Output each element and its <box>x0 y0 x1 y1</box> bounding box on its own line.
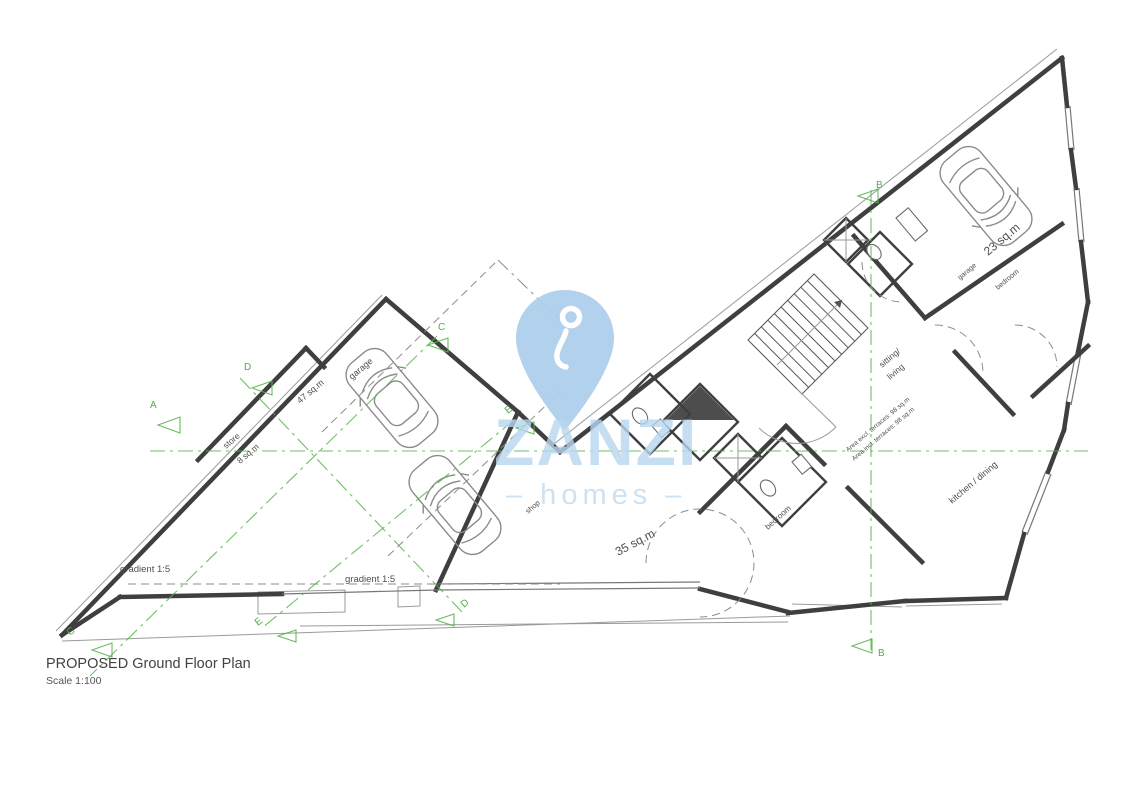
room-label-bedroom-right: bedroom <box>995 268 1021 291</box>
room-area-shop: 35 sq.m <box>613 526 657 558</box>
pavement <box>258 586 1002 614</box>
section-marker-e-bottom: E <box>253 615 265 628</box>
car-icon <box>929 136 1043 255</box>
watermark-tagline: – homes – <box>506 479 686 511</box>
section-marker-c-top: C <box>438 322 445 333</box>
plan-scale: Scale 1:100 <box>46 675 102 687</box>
annotation-gradient-mid: gradient 1:5 <box>345 574 395 585</box>
interior-walls <box>198 224 1088 562</box>
floor-plan-page: A B B C C D D E E store 8 sq.m garage 47… <box>0 0 1131 800</box>
room-label-bedroom-mid: bedroom <box>763 503 793 531</box>
plan-title: PROPOSED Ground Floor Plan <box>46 656 251 672</box>
floor-plan-drawing: A B B C C D D E E store 8 sq.m garage 47… <box>0 0 1131 800</box>
room-label-garage-right: garage <box>957 262 978 281</box>
doors <box>646 262 1057 617</box>
section-marker-b-bottom: B <box>878 648 885 659</box>
section-marker-a: A <box>150 400 157 411</box>
title-block: PROPOSED Ground Floor Plan Scale 1:100 <box>46 656 251 687</box>
car-icon <box>335 338 449 457</box>
section-marker-d-bottom: D <box>459 597 472 610</box>
watermark: ZANZI – homes – <box>494 290 698 511</box>
section-marker-d-top: D <box>244 362 251 373</box>
annotation-area-excl: Area excl. terraces: 98 sq.m <box>845 396 911 453</box>
annotation-gradient-left: gradient 1:5 <box>120 564 170 575</box>
room-label-kitchen: kitchen / dining <box>947 459 999 505</box>
section-marker-b-top: B <box>876 180 883 191</box>
watermark-brand: ZANZI <box>494 405 698 479</box>
